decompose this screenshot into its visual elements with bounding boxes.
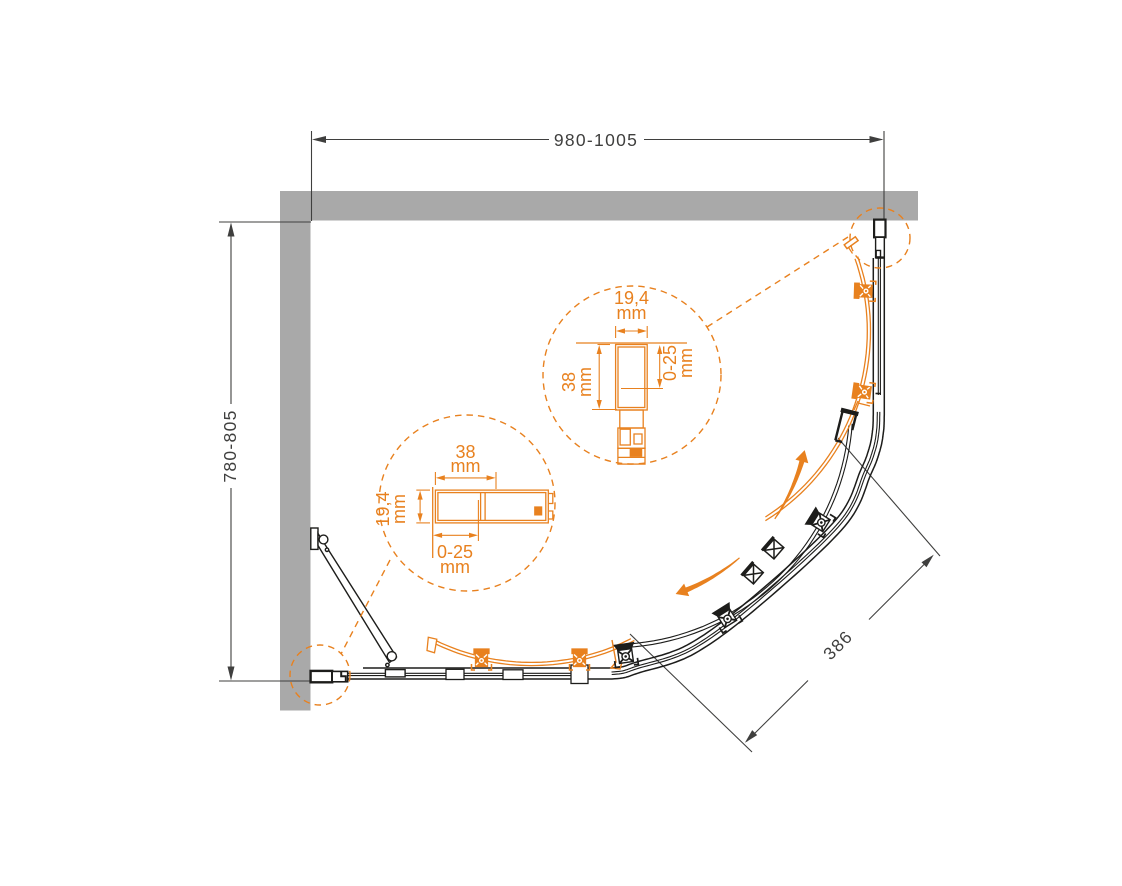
svg-text:mm: mm (451, 456, 481, 476)
svg-text:mm: mm (389, 494, 409, 524)
svg-text:980-1005: 980-1005 (554, 130, 638, 150)
svg-text:mm: mm (575, 367, 595, 397)
svg-text:mm: mm (617, 303, 647, 323)
svg-text:mm: mm (440, 557, 470, 577)
svg-text:mm: mm (676, 348, 696, 378)
svg-text:780-805: 780-805 (220, 409, 240, 482)
